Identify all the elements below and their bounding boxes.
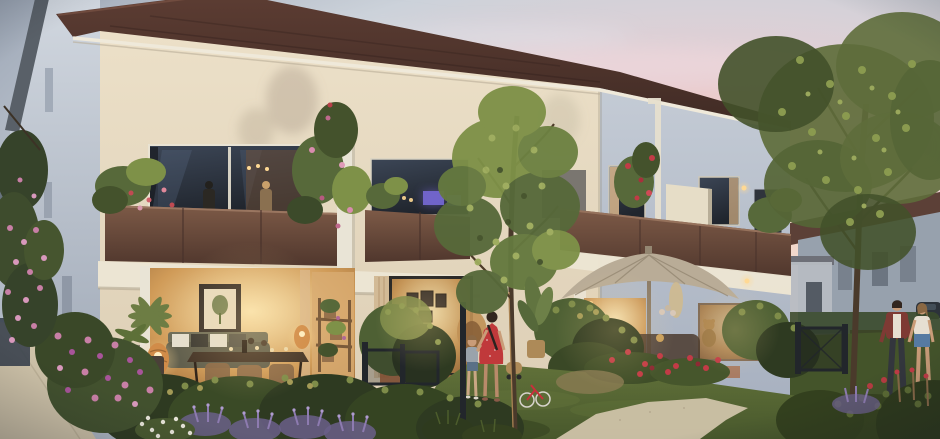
render-canvas <box>0 0 940 439</box>
vignette <box>0 0 940 439</box>
architectural-render <box>0 0 940 439</box>
